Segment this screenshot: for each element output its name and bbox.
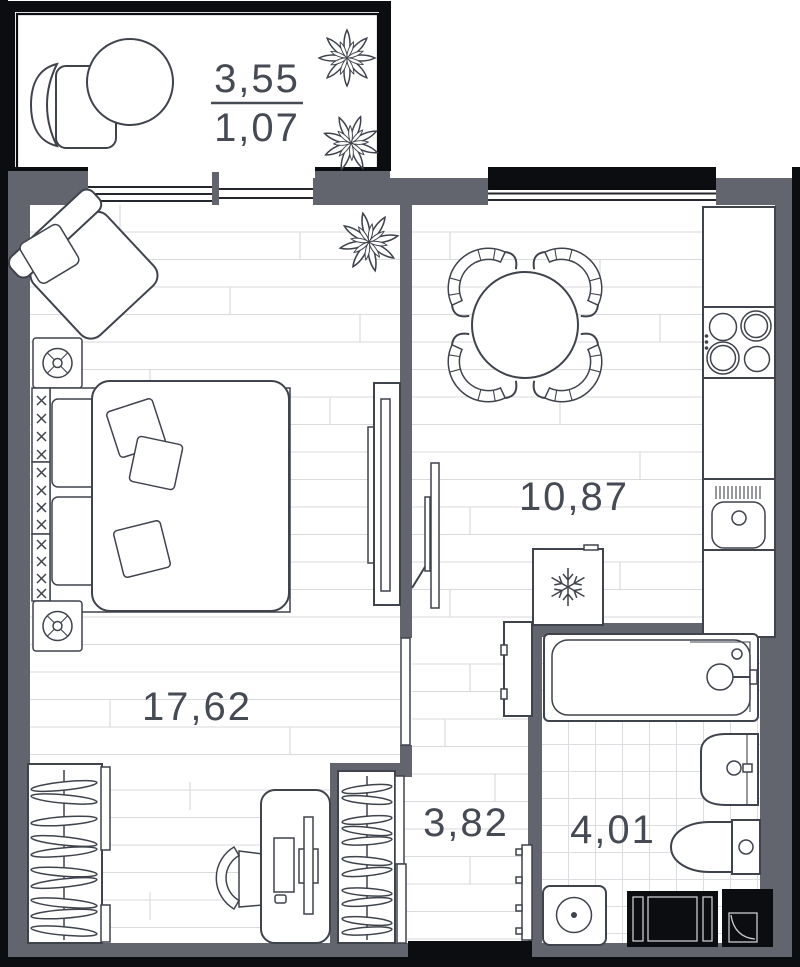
toilet <box>671 820 760 874</box>
dining-table <box>472 272 578 378</box>
balcony: 3,55 1,07 <box>31 30 387 179</box>
stove <box>703 307 775 378</box>
bathroom-door <box>516 845 532 940</box>
flush-button <box>739 840 753 854</box>
hinge <box>516 849 522 855</box>
hinge <box>516 905 522 911</box>
mouse <box>275 895 286 903</box>
dining-set <box>431 231 619 419</box>
keyboard <box>274 838 294 892</box>
balcony-area-reduced: 1,07 <box>214 106 300 150</box>
hinge <box>501 689 507 699</box>
wardrobe-door <box>101 767 110 850</box>
bathroom-sink <box>701 734 758 805</box>
faucet <box>707 664 733 690</box>
wardrobe-door <box>397 864 406 943</box>
bathroom-area-label: 4,01 <box>570 808 656 852</box>
washing-machine <box>543 886 606 945</box>
bedroom-balcony-window <box>88 172 212 205</box>
balcony-area-label: 3,55 1,07 <box>211 57 303 150</box>
fridge <box>533 545 603 625</box>
bedroom-area-label: 17,62 <box>142 685 252 729</box>
wardrobe-bedroom <box>28 764 110 943</box>
floor-plan: 3,55 1,07 <box>0 0 800 967</box>
pillow <box>52 497 96 585</box>
entrance-door <box>408 941 532 957</box>
hallway-area-label: 3,82 <box>423 801 509 845</box>
monitor <box>304 817 313 914</box>
bed <box>32 381 290 612</box>
tv-kitchen <box>412 463 439 608</box>
bedroom-balcony-door-window <box>219 172 313 205</box>
kitchen: 10,87 <box>412 207 775 637</box>
plan-drawing: 3,55 1,07 <box>0 0 800 967</box>
hinge <box>501 645 507 655</box>
bedroom-door <box>401 638 410 745</box>
balcony-pier-right <box>315 168 390 205</box>
kitchen-counter <box>703 207 775 637</box>
wardrobe-door <box>101 905 110 942</box>
cushion <box>129 436 184 491</box>
wall-divider-upper <box>400 205 412 638</box>
wardrobe-hallway <box>338 771 406 943</box>
drain <box>732 649 742 659</box>
balcony-table <box>87 39 173 125</box>
speaker-icon <box>43 349 72 378</box>
kitchen-area-label: 10,87 <box>519 475 629 519</box>
cushion <box>113 520 171 578</box>
wall-left <box>8 178 30 957</box>
window-mullion <box>212 172 219 205</box>
kitchen-window <box>488 167 716 205</box>
balcony-area-total: 3,55 <box>214 57 300 101</box>
bathtub <box>544 634 758 721</box>
desk <box>261 790 330 943</box>
plant-icon <box>334 207 404 277</box>
pillow <box>52 399 96 487</box>
utility-shaft <box>627 889 773 947</box>
plant-icon <box>319 30 375 86</box>
hinge <box>516 877 522 883</box>
kitchen-sink <box>703 479 775 550</box>
nightstand-bottom <box>33 601 82 651</box>
hallway: 3,82 <box>338 622 532 943</box>
wardrobe-door <box>395 776 404 864</box>
balcony-armchair <box>31 39 173 148</box>
kitchen-door <box>501 622 532 716</box>
wall-right-upper <box>775 205 792 637</box>
faucet <box>727 761 741 775</box>
tv-bedroom <box>368 383 400 605</box>
faucet <box>732 511 746 525</box>
hinge <box>516 928 522 934</box>
nightstand-top <box>33 338 82 388</box>
speaker-icon <box>43 612 72 641</box>
bathroom: 4,01 <box>543 634 773 947</box>
